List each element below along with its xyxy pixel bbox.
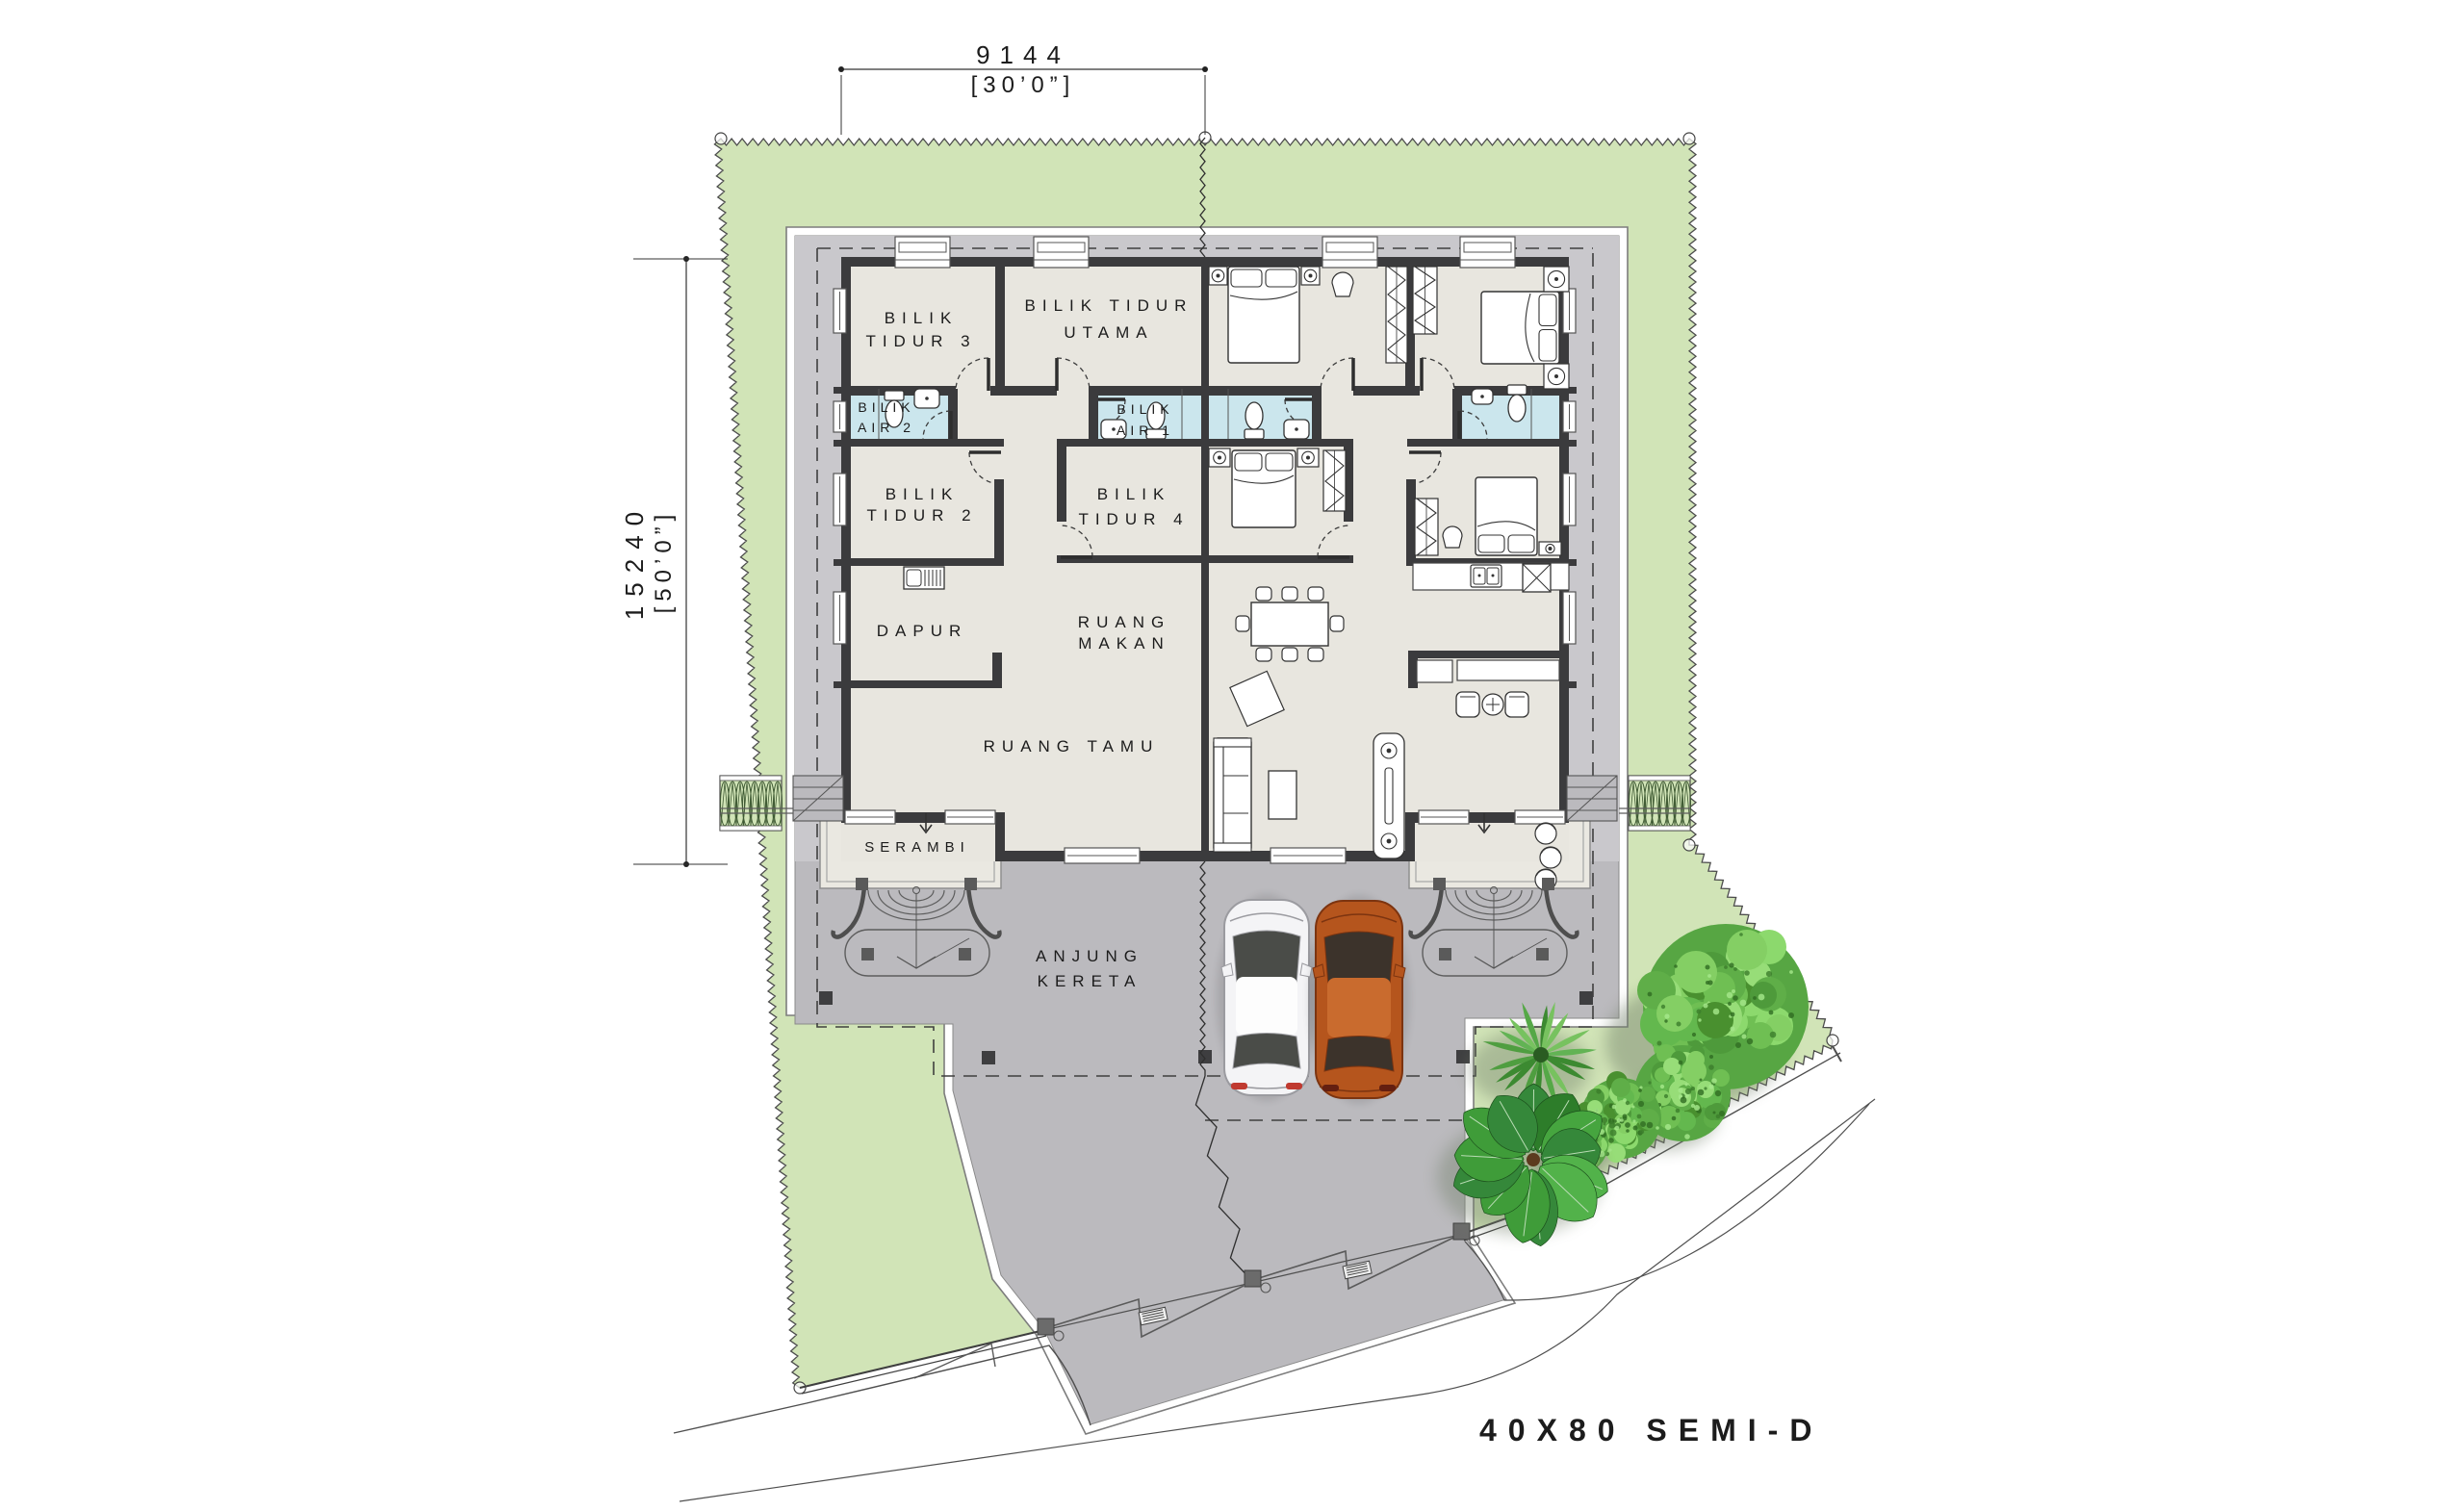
svg-text:[50’0”]: [50’0”]	[651, 509, 677, 614]
svg-text:RUANG: RUANG	[1078, 613, 1170, 631]
svg-text:BILIK TIDUR: BILIK TIDUR	[1025, 296, 1193, 315]
svg-text:TIDUR 2: TIDUR 2	[866, 506, 977, 525]
svg-text:UTAMA: UTAMA	[1064, 323, 1153, 342]
svg-text:AIR 2: AIR 2	[858, 420, 915, 435]
svg-text:BILIK: BILIK	[885, 485, 960, 503]
svg-text:40X80 SEMI-D: 40X80 SEMI-D	[1479, 1413, 1823, 1447]
svg-text:SERAMBI: SERAMBI	[864, 839, 970, 856]
svg-text:MAKAN: MAKAN	[1078, 634, 1169, 653]
svg-text:BILIK: BILIK	[1116, 401, 1173, 417]
svg-text:BILIK: BILIK	[1097, 485, 1171, 503]
svg-text:BILIK: BILIK	[885, 309, 959, 327]
svg-text:TIDUR 3: TIDUR 3	[865, 332, 976, 350]
svg-text:AIR 1: AIR 1	[1116, 423, 1174, 438]
svg-text:ANJUNG: ANJUNG	[1036, 947, 1143, 965]
svg-text:15240: 15240	[620, 502, 649, 620]
svg-text:BILIK: BILIK	[858, 399, 914, 415]
svg-text:DAPUR: DAPUR	[877, 622, 968, 640]
svg-text:[30’0”]: [30’0”]	[971, 72, 1076, 98]
svg-text:9144: 9144	[976, 40, 1070, 69]
svg-text:KERETA: KERETA	[1038, 972, 1142, 990]
svg-text:RUANG TAMU: RUANG TAMU	[984, 737, 1160, 755]
svg-text:TIDUR 4: TIDUR 4	[1078, 510, 1189, 528]
